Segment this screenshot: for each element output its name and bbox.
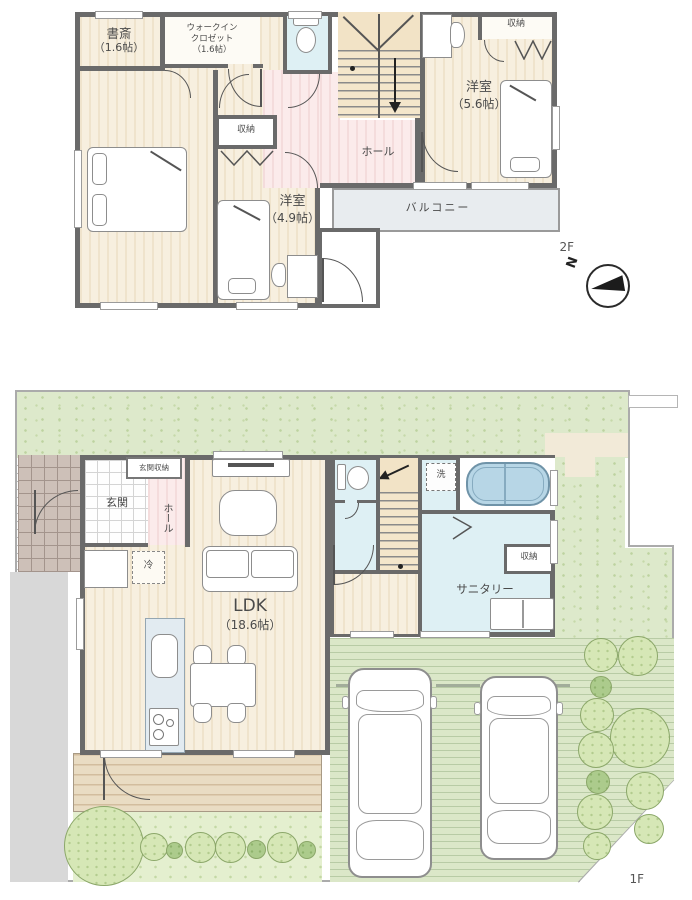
study-label: 書斎: [75, 26, 163, 41]
kitchen-sink: [151, 634, 178, 678]
window: [74, 150, 82, 228]
desk: [287, 255, 318, 298]
site-boundary: [628, 545, 674, 547]
stairs-arrow-line: [394, 58, 396, 104]
car-rear: [487, 810, 551, 844]
sanitary-label: サニタリー: [425, 583, 545, 597]
door-leaf: [421, 132, 423, 172]
f1-stairs-steps: [378, 492, 422, 572]
tree: [583, 832, 611, 860]
wic-label: クロゼット: [166, 34, 258, 44]
ldk-wing-floor: [334, 574, 418, 634]
tree: [586, 770, 610, 794]
window: [288, 11, 322, 19]
tree: [578, 732, 614, 768]
parking-tick: [436, 684, 480, 687]
car-roof: [489, 718, 549, 804]
window: [420, 631, 490, 638]
door-leaf: [333, 545, 335, 585]
stove: [149, 708, 179, 746]
tree: [64, 806, 144, 886]
chair: [271, 263, 286, 287]
door-leaf: [260, 69, 262, 107]
f2-hall-label: ホール: [338, 145, 418, 158]
concrete-path: [10, 572, 68, 882]
desk: [422, 14, 452, 58]
neighbor-strip: [628, 395, 678, 408]
window: [413, 182, 467, 190]
dining-table: [190, 663, 256, 707]
folding-door-icon: [514, 40, 552, 60]
tree: [267, 832, 298, 863]
floor2-label: 2F: [528, 240, 574, 254]
car-mirror: [430, 696, 437, 709]
f2-closet-right-label: 収納: [480, 19, 552, 30]
tree: [590, 676, 612, 698]
car-mirror: [556, 702, 563, 715]
car-mirror: [342, 696, 349, 709]
wall: [75, 66, 165, 71]
tree: [580, 698, 614, 732]
car-windshield: [487, 696, 551, 716]
car-roof: [358, 714, 422, 814]
door-leaf: [322, 258, 324, 302]
shoe-cabinet: [84, 550, 128, 588]
site-boundary: [628, 390, 630, 547]
tree: [185, 832, 216, 863]
bathtub-line: [504, 464, 506, 504]
window: [76, 598, 84, 650]
window: [100, 750, 162, 758]
window: [550, 520, 558, 564]
toilet-bowl-icon: [347, 466, 369, 490]
f1-hall-label: ホール: [156, 492, 172, 544]
open-door-icon: [452, 516, 478, 540]
burner-icon: [166, 719, 174, 727]
floor1-site-plan: 玄関収納 玄関 ホール 冷 LDK （18.6帖）: [0, 380, 692, 900]
bed-pillow: [510, 157, 540, 172]
window: [213, 451, 283, 459]
wall: [456, 458, 460, 514]
tree: [584, 638, 618, 672]
dining-chair: [227, 703, 246, 723]
floor2-plan: バルコニー ホール ウォークイン クロゼット （1.6帖） 書斎 （1.6帖） …: [0, 0, 692, 380]
toilet-bowl-icon: [296, 27, 316, 53]
f2-closet-mid-label: 収納: [215, 125, 277, 136]
balcony-label: バルコニー: [372, 201, 504, 214]
wall: [185, 455, 190, 547]
washer-label: 洗: [426, 470, 456, 481]
window: [100, 302, 158, 310]
f1-closet-label: 収納: [504, 552, 554, 562]
walkway-path: [545, 433, 628, 457]
door-leaf: [103, 755, 105, 800]
window: [552, 106, 560, 150]
entrance-storage-label: 玄関収納: [126, 463, 182, 472]
dining-chair: [227, 645, 246, 665]
wall: [82, 543, 148, 547]
sofa-cushion: [206, 550, 249, 578]
fridge-label: 冷: [132, 560, 165, 571]
walkway-path: [565, 457, 595, 477]
stairs-arrow-head: [389, 102, 401, 113]
window: [236, 302, 298, 310]
grass-area: [555, 548, 672, 640]
burner-icon: [153, 729, 164, 740]
dining-chair: [193, 703, 212, 723]
window: [350, 631, 394, 638]
wall: [333, 500, 345, 503]
tree: [618, 636, 658, 676]
stairs-end-dot: [398, 564, 403, 569]
tree: [140, 833, 168, 861]
tree: [634, 814, 664, 844]
door-leaf: [34, 490, 36, 534]
tree: [610, 708, 670, 768]
f2-hall-zone: [320, 72, 340, 183]
window: [233, 750, 295, 758]
entrance-label: 玄関: [88, 496, 146, 509]
dining-chair: [193, 645, 212, 665]
car-mirror: [474, 702, 481, 715]
window: [550, 470, 558, 506]
sofa-cushion: [251, 550, 294, 578]
tree: [166, 842, 183, 859]
coffee-table: [219, 490, 277, 536]
ldk-label: LDK: [195, 596, 305, 616]
car-rear: [356, 820, 424, 860]
window: [95, 11, 143, 19]
window: [471, 182, 529, 190]
grass-area: [17, 392, 628, 458]
bathtub-inner: [472, 467, 544, 501]
tree: [247, 840, 266, 859]
tv-icon: [228, 463, 274, 467]
stairs-divider: [378, 14, 380, 118]
tree: [577, 794, 613, 830]
folding-door-icon: [220, 150, 274, 166]
car-windshield: [356, 690, 424, 712]
ldk-size-label: （18.6帖）: [195, 618, 305, 632]
tree: [215, 832, 246, 863]
floor1-label: 1F: [598, 872, 644, 886]
bed-pillow: [228, 278, 256, 294]
wall: [418, 458, 422, 634]
stairs-start-dot: [350, 66, 355, 71]
wall: [165, 64, 228, 68]
counter-line: [522, 600, 524, 628]
wall: [420, 510, 555, 514]
burner-icon: [153, 714, 164, 725]
tree: [626, 772, 664, 810]
tree: [298, 841, 316, 859]
floorplan-canvas: バルコニー ホール ウォークイン クロゼット （1.6帖） 書斎 （1.6帖） …: [0, 0, 692, 900]
bed-pillow: [92, 194, 107, 226]
wall: [253, 64, 263, 68]
toilet-tank: [337, 464, 346, 490]
bed-pillow: [92, 153, 107, 185]
study-size-label: （1.6帖）: [75, 41, 163, 54]
wic-label: ウォークイン: [166, 23, 258, 33]
chair: [450, 22, 465, 48]
tv-board: [212, 459, 290, 477]
wic-size-label: （1.6帖）: [166, 45, 258, 55]
wall: [376, 458, 380, 573]
wall: [357, 500, 377, 503]
